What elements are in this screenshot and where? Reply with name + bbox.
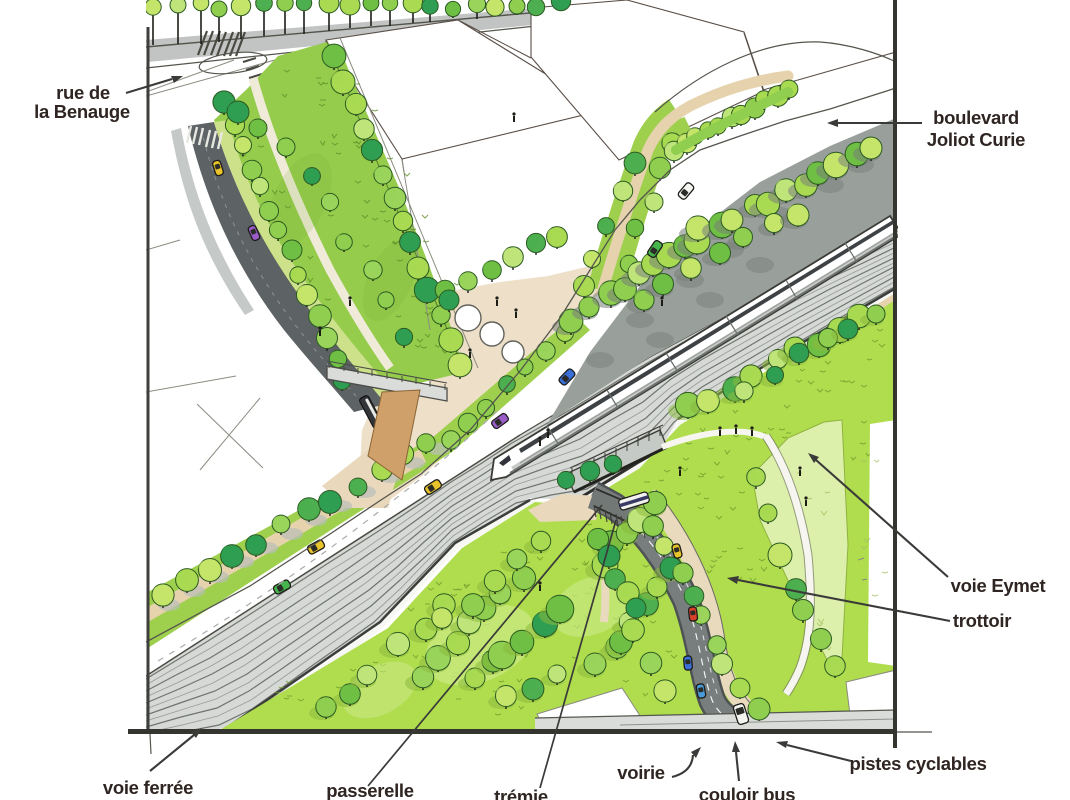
svg-text:couloir bus: couloir bus — [699, 784, 795, 800]
svg-text:trottoir: trottoir — [953, 610, 1011, 631]
svg-text:Joliot Curie: Joliot Curie — [927, 129, 1025, 150]
svg-text:pistes cyclables: pistes cyclables — [849, 753, 986, 774]
svg-text:passerelle: passerelle — [326, 780, 414, 800]
svg-text:la Benauge: la Benauge — [34, 101, 130, 122]
svg-text:voie Eymet: voie Eymet — [951, 575, 1046, 596]
svg-text:boulevard: boulevard — [933, 107, 1019, 128]
svg-text:rue de: rue de — [56, 82, 110, 103]
svg-text:trémie: trémie — [494, 786, 548, 800]
svg-text:voie ferrée: voie ferrée — [103, 777, 193, 798]
svg-text:voirie: voirie — [617, 762, 665, 783]
